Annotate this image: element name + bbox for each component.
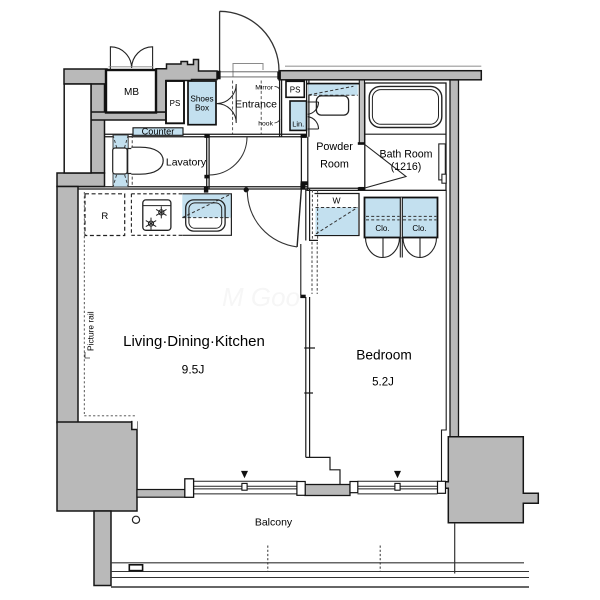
svg-text:Powder: Powder: [316, 141, 353, 153]
svg-text:M Goo: M Goo: [222, 282, 300, 312]
svg-text:Lavatory: Lavatory: [166, 157, 207, 169]
svg-text:Lin.: Lin.: [292, 119, 304, 128]
svg-text:PS: PS: [290, 86, 301, 95]
svg-text:Clo.: Clo.: [375, 224, 389, 233]
svg-text:R: R: [101, 211, 108, 222]
svg-text:5.2J: 5.2J: [372, 377, 394, 389]
svg-text:PS: PS: [170, 99, 181, 108]
svg-text:Clo.: Clo.: [412, 224, 426, 233]
svg-text:Mirror: Mirror: [255, 85, 273, 92]
svg-text:hook: hook: [258, 121, 273, 128]
svg-text:Shoes: Shoes: [190, 95, 213, 104]
svg-text:Bedroom: Bedroom: [356, 348, 412, 363]
svg-text:Room: Room: [320, 159, 349, 171]
svg-text:Counter: Counter: [142, 126, 175, 136]
svg-text:9.5J: 9.5J: [182, 363, 205, 377]
svg-text:Bath Room: Bath Room: [380, 149, 433, 161]
svg-text:(1216): (1216): [391, 161, 422, 173]
svg-text:Entrance: Entrance: [235, 99, 277, 111]
svg-text:MB: MB: [124, 87, 139, 98]
svg-text:Living·Dining·Kitchen: Living·Dining·Kitchen: [123, 333, 265, 350]
svg-text:W: W: [332, 196, 340, 206]
svg-text:Box: Box: [195, 104, 209, 113]
svg-text:Balcony: Balcony: [255, 516, 293, 528]
svg-text:Picture rail: Picture rail: [86, 311, 96, 351]
